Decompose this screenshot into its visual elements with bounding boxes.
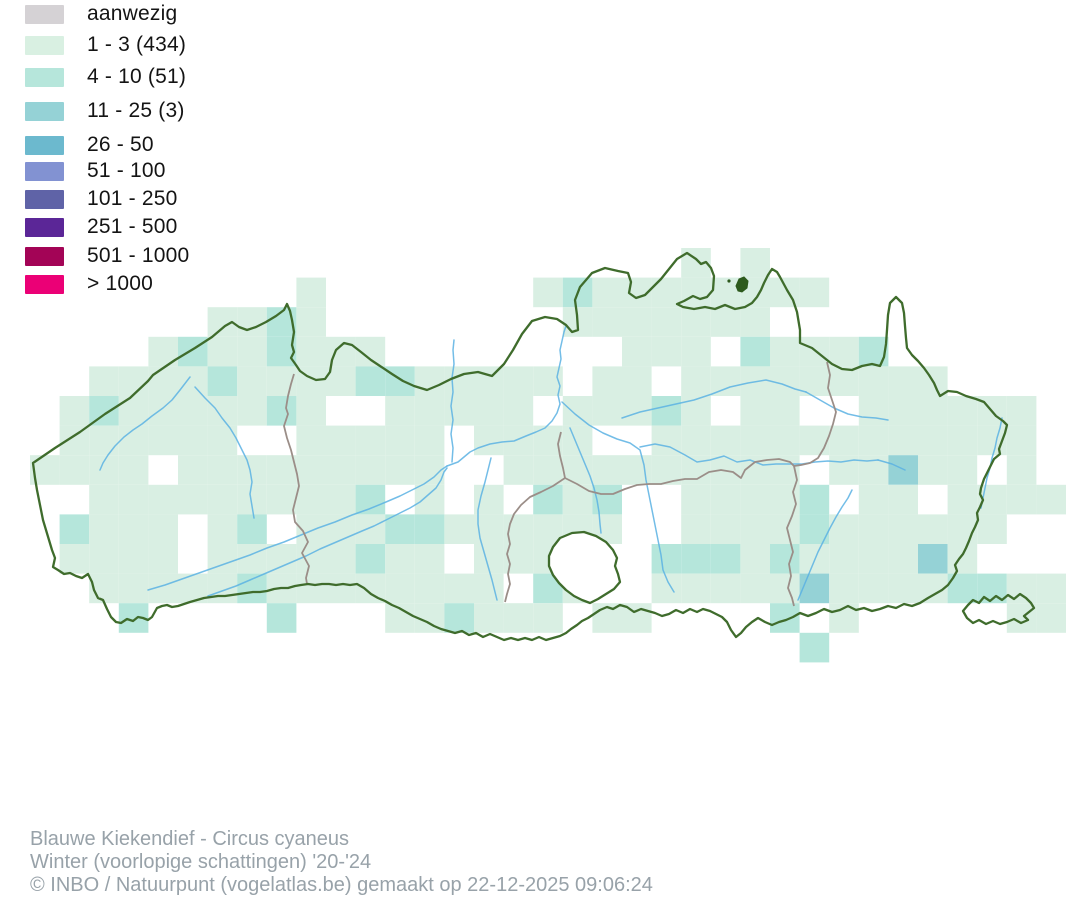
grid-cell (444, 603, 474, 633)
grid-cell (415, 485, 445, 515)
grid-cell (504, 514, 534, 544)
grid-cell (740, 426, 770, 456)
grid-cell (60, 544, 90, 574)
grid-cell (356, 426, 386, 456)
grid-cell (770, 426, 800, 456)
grid-cell (770, 278, 800, 308)
grid-cell (800, 426, 830, 456)
grid-cell (326, 455, 356, 485)
grid-cell (592, 455, 622, 485)
grid-cells (30, 248, 1066, 662)
legend-label: 501 - 1000 (87, 244, 189, 268)
grid-cell (444, 396, 474, 426)
grid-cell (800, 574, 830, 604)
grid-cell (888, 396, 918, 426)
grid-cell (829, 426, 859, 456)
grid-cell (119, 514, 149, 544)
grid-cell (296, 396, 326, 426)
grid-cell (888, 426, 918, 456)
grid-cell (829, 337, 859, 367)
grid-cell (474, 396, 504, 426)
grid-cell (237, 366, 267, 396)
legend-item: 4 - 10 (51) (25, 67, 186, 87)
grid-cell (563, 396, 593, 426)
grid-cell (474, 603, 504, 633)
grid-cell (415, 544, 445, 574)
atlas-map-page: aanwezig1 - 3 (434)4 - 10 (51)11 - 25 (3… (0, 0, 1074, 900)
grid-cell (859, 574, 889, 604)
grid-cell (267, 603, 297, 633)
grid-cell (740, 544, 770, 574)
grid-cell (681, 455, 711, 485)
grid-cell (296, 485, 326, 515)
grid-cell (178, 485, 208, 515)
grid-cell (740, 574, 770, 604)
grid-cell (592, 278, 622, 308)
grid-cell (444, 574, 474, 604)
grid-cell (740, 514, 770, 544)
grid-cell (60, 455, 90, 485)
grid-cell (504, 426, 534, 456)
grid-cell (888, 455, 918, 485)
caption-credits: © INBO / Natuurpunt (vogelatlas.be) gema… (30, 874, 653, 897)
grid-cell (681, 485, 711, 515)
grid-cell (681, 366, 711, 396)
grid-cell (622, 337, 652, 367)
grid-cell (888, 514, 918, 544)
grid-cell (740, 485, 770, 515)
grid-cell (296, 455, 326, 485)
grid-cell (385, 544, 415, 574)
grid-cell (148, 514, 178, 544)
legend-item: > 1000 (25, 274, 153, 294)
grid-cell (267, 396, 297, 426)
legend-swatch (25, 275, 64, 294)
grid-cell (740, 337, 770, 367)
grid-cell (296, 426, 326, 456)
grid-cell (326, 426, 356, 456)
grid-cell (504, 396, 534, 426)
grid-cell (563, 426, 593, 456)
grid-cell (385, 396, 415, 426)
grid-cell (918, 455, 948, 485)
grid-cell (800, 278, 830, 308)
grid-cell (119, 455, 149, 485)
map-caption: Blauwe Kiekendief - Circus cyaneus Winte… (30, 828, 653, 897)
grid-cell (622, 307, 652, 337)
grid-cell (474, 366, 504, 396)
legend-label: 251 - 500 (87, 215, 178, 239)
grid-cell (415, 366, 445, 396)
grid-cell (711, 485, 741, 515)
grid-cell (681, 544, 711, 574)
legend-label: > 1000 (87, 272, 153, 296)
grid-cell (888, 366, 918, 396)
grid-cell (148, 426, 178, 456)
grid-cell (711, 514, 741, 544)
grid-cell (356, 366, 386, 396)
legend-swatch (25, 36, 64, 55)
grid-cell (563, 485, 593, 515)
grid-cell (859, 485, 889, 515)
grid-cell (208, 366, 238, 396)
grid-cell (859, 544, 889, 574)
grid-cell (60, 514, 90, 544)
legend-label: 11 - 25 (3) (87, 99, 185, 123)
grid-cell (89, 544, 119, 574)
grid-cell (208, 396, 238, 426)
grid-cell (237, 514, 267, 544)
legend-item: 11 - 25 (3) (25, 101, 185, 121)
forest-dot (727, 279, 730, 282)
grid-cell (948, 426, 978, 456)
grid-cell (948, 544, 978, 574)
grid-cell (208, 574, 238, 604)
grid-cell (681, 574, 711, 604)
grid-cell (119, 396, 149, 426)
grid-cell (148, 544, 178, 574)
grid-cell (770, 574, 800, 604)
grid-cell (533, 278, 563, 308)
grid-cell (89, 366, 119, 396)
grid-cell (829, 544, 859, 574)
grid-cell (267, 544, 297, 574)
grid-cell (770, 544, 800, 574)
grid-cell (326, 485, 356, 515)
legend-label: 26 - 50 (87, 133, 154, 157)
grid-cell (415, 426, 445, 456)
legend-label: aanwezig (87, 2, 177, 26)
grid-cell (918, 426, 948, 456)
grid-cell (385, 426, 415, 456)
grid-cell (681, 426, 711, 456)
legend-swatch (25, 218, 64, 237)
grid-cell (89, 426, 119, 456)
grid-cell (652, 544, 682, 574)
grid-cell (237, 544, 267, 574)
grid-cell (326, 544, 356, 574)
legend-item: 251 - 500 (25, 217, 178, 237)
grid-cell (89, 455, 119, 485)
grid-cell (89, 514, 119, 544)
grid-cell (711, 544, 741, 574)
grid-cell (504, 603, 534, 633)
grid-cell (208, 514, 238, 544)
grid-cell (1007, 574, 1037, 604)
grid-cell (829, 574, 859, 604)
grid-cell (356, 544, 386, 574)
legend-swatch (25, 102, 64, 121)
grid-cell (1007, 426, 1037, 456)
grid-cell (237, 337, 267, 367)
grid-cell (1007, 485, 1037, 515)
grid-cell (119, 366, 149, 396)
grid-cell (148, 396, 178, 426)
grid-cell (474, 426, 504, 456)
grid-cell (1036, 574, 1066, 604)
grid-cell (60, 426, 90, 456)
grid-cell (296, 278, 326, 308)
grid-cell (859, 514, 889, 544)
grid-cell (1007, 396, 1037, 426)
legend-swatch (25, 5, 64, 24)
grid-cell (178, 455, 208, 485)
grid-cell (474, 574, 504, 604)
legend-item: aanwezig (25, 4, 177, 24)
grid-cell (711, 307, 741, 337)
grid-cell (60, 396, 90, 426)
grid-cell (592, 307, 622, 337)
grid-cell (948, 396, 978, 426)
grid-cell (770, 514, 800, 544)
grid-cell (681, 396, 711, 426)
grid-cell (356, 485, 386, 515)
grid-cell (918, 514, 948, 544)
grid-cell (652, 396, 682, 426)
grid-cell (888, 485, 918, 515)
legend-label: 1 - 3 (434) (87, 33, 186, 57)
grid-cell (504, 366, 534, 396)
grid-cell (237, 307, 267, 337)
grid-cell (888, 544, 918, 574)
grid-cell (711, 426, 741, 456)
grid-cell (415, 574, 445, 604)
grid-cell (296, 574, 326, 604)
grid-cell (533, 603, 563, 633)
grid-cell (237, 574, 267, 604)
grid-cell (326, 337, 356, 367)
grid-cell (770, 603, 800, 633)
grid-cell (415, 396, 445, 426)
grid-cell (356, 514, 386, 544)
grid-cell (178, 366, 208, 396)
grid-cell (1007, 603, 1037, 633)
grid-cell (119, 544, 149, 574)
grid-cell (711, 366, 741, 396)
grid-cell (859, 426, 889, 456)
grid-cell (296, 307, 326, 337)
legend-item: 51 - 100 (25, 161, 166, 181)
grid-cell (681, 307, 711, 337)
grid-cell (415, 514, 445, 544)
grid-cell (859, 366, 889, 396)
grid-cell (1036, 603, 1066, 633)
grid-cell (652, 307, 682, 337)
grid-cell (740, 396, 770, 426)
grid-cell (178, 337, 208, 367)
grid-cell (740, 307, 770, 337)
grid-cell (385, 366, 415, 396)
legend-item: 501 - 1000 (25, 246, 189, 266)
legend-swatch (25, 247, 64, 266)
grid-cell (888, 574, 918, 604)
legend-swatch (25, 68, 64, 87)
grid-cell (622, 455, 652, 485)
grid-cell (148, 485, 178, 515)
grid-cell (918, 544, 948, 574)
grid-cell (592, 366, 622, 396)
grid-cell (326, 574, 356, 604)
grid-cell (208, 485, 238, 515)
legend-item: 26 - 50 (25, 135, 154, 155)
grid-cell (829, 366, 859, 396)
grid-cell (592, 396, 622, 426)
grid-cell (681, 278, 711, 308)
grid-cell (89, 485, 119, 515)
grid-cell (918, 396, 948, 426)
grid-cell (740, 248, 770, 278)
grid-cell (681, 514, 711, 544)
grid-cell (208, 455, 238, 485)
legend-swatch (25, 136, 64, 155)
distribution-map (0, 0, 1074, 900)
grid-cell (237, 396, 267, 426)
grid-cell (770, 396, 800, 426)
grid-cell (948, 485, 978, 515)
grid-cell (385, 455, 415, 485)
grid-cell (770, 366, 800, 396)
legend-label: 51 - 100 (87, 159, 166, 183)
grid-cell (711, 278, 741, 308)
grid-cell (1007, 455, 1037, 485)
grid-cell (652, 337, 682, 367)
legend-label: 101 - 250 (87, 187, 178, 211)
legend-label: 4 - 10 (51) (87, 65, 186, 89)
legend-item: 1 - 3 (434) (25, 35, 186, 55)
grid-cell (385, 574, 415, 604)
legend-swatch (25, 162, 64, 181)
grid-cell (859, 396, 889, 426)
grid-cell (444, 514, 474, 544)
grid-cell (178, 426, 208, 456)
grid-cell (681, 337, 711, 367)
grid-cell (267, 455, 297, 485)
legend-swatch (25, 190, 64, 209)
grid-cell (770, 337, 800, 367)
grid-cell (119, 485, 149, 515)
grid-cell (711, 574, 741, 604)
grid-cell (948, 455, 978, 485)
grid-cell (356, 455, 386, 485)
grid-cell (622, 366, 652, 396)
caption-species: Blauwe Kiekendief - Circus cyaneus (30, 828, 653, 851)
grid-cell (800, 633, 830, 663)
grid-cell (208, 337, 238, 367)
grid-cell (296, 337, 326, 367)
caption-season: Winter (voorlopige schattingen) '20-'24 (30, 851, 653, 874)
grid-cell (859, 455, 889, 485)
grid-cell (829, 514, 859, 544)
grid-cell (652, 278, 682, 308)
grid-cell (800, 485, 830, 515)
grid-cell (1036, 485, 1066, 515)
grid-cell (208, 426, 238, 456)
grid-cell (178, 396, 208, 426)
grid-cell (267, 485, 297, 515)
grid-cell (800, 337, 830, 367)
grid-cell (504, 455, 534, 485)
legend-item: 101 - 250 (25, 189, 178, 209)
grid-cell (533, 455, 563, 485)
grid-cell (977, 514, 1007, 544)
grid-cell (148, 366, 178, 396)
grid-cell (119, 574, 149, 604)
